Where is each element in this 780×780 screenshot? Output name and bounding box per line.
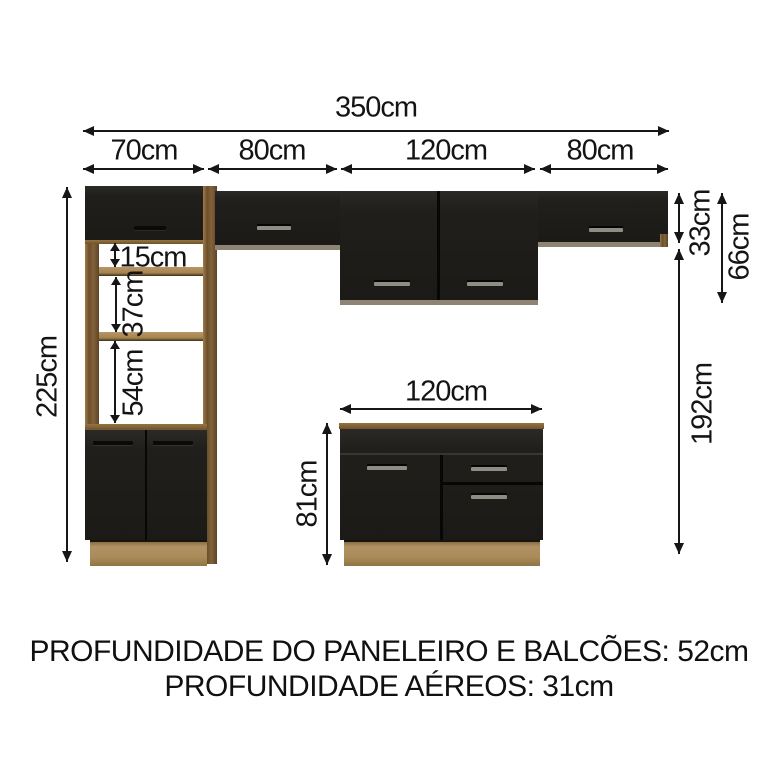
wall-cabinet-80-right-handle: [589, 228, 623, 232]
base-cabinet-door-handle: [367, 466, 407, 470]
wall-cabinet-120-door-divider: [437, 191, 440, 300]
base-cabinet-bottom-drawer-handle: [471, 495, 507, 499]
dim-segment-80a-arrow-icon: [208, 168, 337, 170]
pantry-top-door: [85, 186, 203, 240]
dim-segment-120-label: 120cm: [405, 135, 487, 168]
wall-cabinet-80-left: [215, 191, 340, 245]
dim-segment-120-arrow-icon: [341, 168, 535, 170]
dim-gap-192-label: 192cm: [687, 363, 720, 445]
dim-segment-80b-label: 80cm: [567, 135, 634, 168]
dim-niche-37-label: 37cm: [118, 271, 151, 338]
base-cabinet-top-drawer-handle: [471, 467, 507, 471]
pantry-lower-left-handle: [93, 441, 133, 445]
base-cabinet-plinth: [344, 540, 540, 566]
pantry-shelf-lower: [85, 332, 217, 341]
wall-cabinet-80-right: [538, 191, 668, 242]
pantry-lower-right-handle: [153, 441, 193, 445]
kitchen-dimension-diagram: 350cm 70cm 80cm 120cm 80cm 225cm 15cm 37…: [0, 0, 780, 780]
pantry-plinth: [90, 540, 207, 566]
dim-total-width-label: 350cm: [335, 92, 417, 125]
dim-segment-70-label: 70cm: [111, 135, 178, 168]
dim-niche-54-label: 54cm: [118, 350, 151, 417]
dim-height-225-arrow-icon: [66, 187, 68, 562]
base-cabinet-divider: [440, 455, 443, 540]
dim-base-width-label: 120cm: [405, 376, 487, 409]
wall-cabinet-80-right-wood-corner: [660, 234, 668, 247]
dim-segment-70-arrow-icon: [83, 168, 204, 170]
wall-cabinet-80-right-bottom-edge: [538, 242, 668, 247]
dim-aereo-33-label: 33cm: [685, 190, 718, 257]
depth-note-wall: PROFUNDIDADE AÉREOS: 31cm: [164, 670, 613, 704]
dim-niche-15-arrow-icon: [114, 243, 116, 267]
dim-total-width-arrow-icon: [83, 130, 669, 132]
dim-gap-192-arrow-icon: [678, 249, 680, 554]
wall-cabinet-120-right-handle: [467, 282, 503, 286]
dim-niche-54-arrow-icon: [114, 341, 116, 423]
pantry-lower-door-divider: [145, 430, 147, 540]
wall-cabinet-120-bottom-edge: [340, 300, 538, 305]
pantry-top-door-handle: [134, 226, 166, 230]
dim-base-height-arrow-icon: [326, 423, 328, 565]
wall-cabinet-80-left-handle: [257, 226, 291, 230]
dim-segment-80b-arrow-icon: [540, 168, 668, 170]
dim-height-225-label: 225cm: [32, 336, 65, 418]
wall-cabinet-120-left-handle: [374, 282, 410, 286]
dim-base-height-label: 81cm: [292, 461, 325, 528]
dim-aereo-66-label: 66cm: [724, 214, 757, 281]
wall-cabinet-80-left-bottom-edge: [215, 245, 340, 250]
depth-note-pantry-base: PROFUNDIDADE DO PANELEIRO E BALCÕES: 52c…: [29, 635, 748, 669]
dim-segment-80a-label: 80cm: [239, 135, 306, 168]
base-cabinet-drawer-seam: [443, 482, 543, 485]
dim-aereo-33-arrow-icon: [678, 193, 680, 243]
dim-base-width-arrow-icon: [340, 408, 542, 410]
pantry-left-side-panel: [85, 244, 99, 430]
